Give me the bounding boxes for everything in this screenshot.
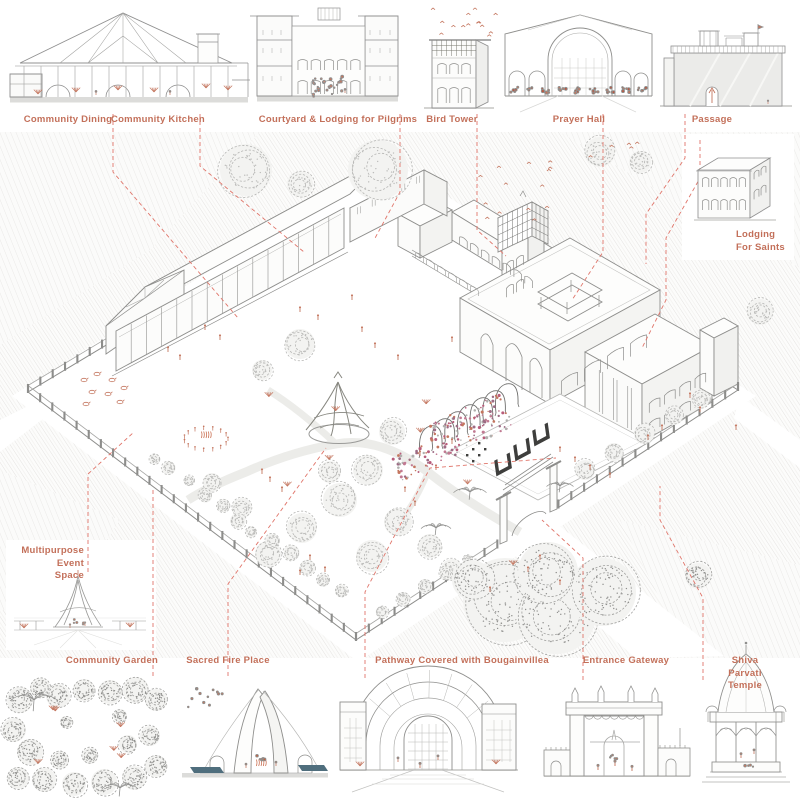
- callout-label-courtyard-lodging: Courtyard & Lodging for Pilgrims: [259, 114, 417, 127]
- vignette-bird-tower: [424, 8, 498, 108]
- callout-label-pathway-bougainvillea: Pathway Covered with Bougainvillea: [375, 655, 549, 668]
- callout-label-passage: Passage: [692, 114, 732, 127]
- callout-label-lodging-for-saints: Lodging For Saints: [736, 229, 785, 254]
- callout-label-prayer-hall: Prayer Hall: [553, 114, 605, 127]
- water-pool: [190, 767, 224, 773]
- callout-label-multipurpose-event-space: Multipurpose Event Space: [10, 545, 84, 583]
- callout-label-bird-tower: Bird Tower: [426, 114, 477, 127]
- vignette-entrance-gateway: [544, 686, 690, 776]
- vignette-prayer-hall: [505, 15, 652, 112]
- callout-label-community-dining: Community Dining: [24, 114, 112, 127]
- callout-label-community-kitchen: Community Kitchen: [111, 114, 205, 127]
- water-pool: [298, 765, 328, 771]
- callout-label-entrance-gateway: Entrance Gateway: [583, 655, 669, 668]
- callout-label-sacred-fire-place: Sacred Fire Place: [186, 655, 269, 668]
- architectural-site-diagram-board: Community Dining Community Kitchen Court…: [0, 0, 800, 800]
- callout-label-community-garden: Community Garden: [66, 655, 158, 668]
- callout-label-shiva-parvati-temple: Shiva Parvati Temple: [718, 655, 773, 693]
- vignette-community-dining-kitchen: [10, 13, 250, 103]
- vignette-passage: [660, 24, 792, 106]
- vignette-courtyard-lodging: [250, 8, 398, 102]
- vignette-community-garden: [1, 677, 167, 797]
- vignette-sacred-fire-place: [182, 687, 328, 777]
- vignette-bougainvillea-pathway: [340, 666, 518, 792]
